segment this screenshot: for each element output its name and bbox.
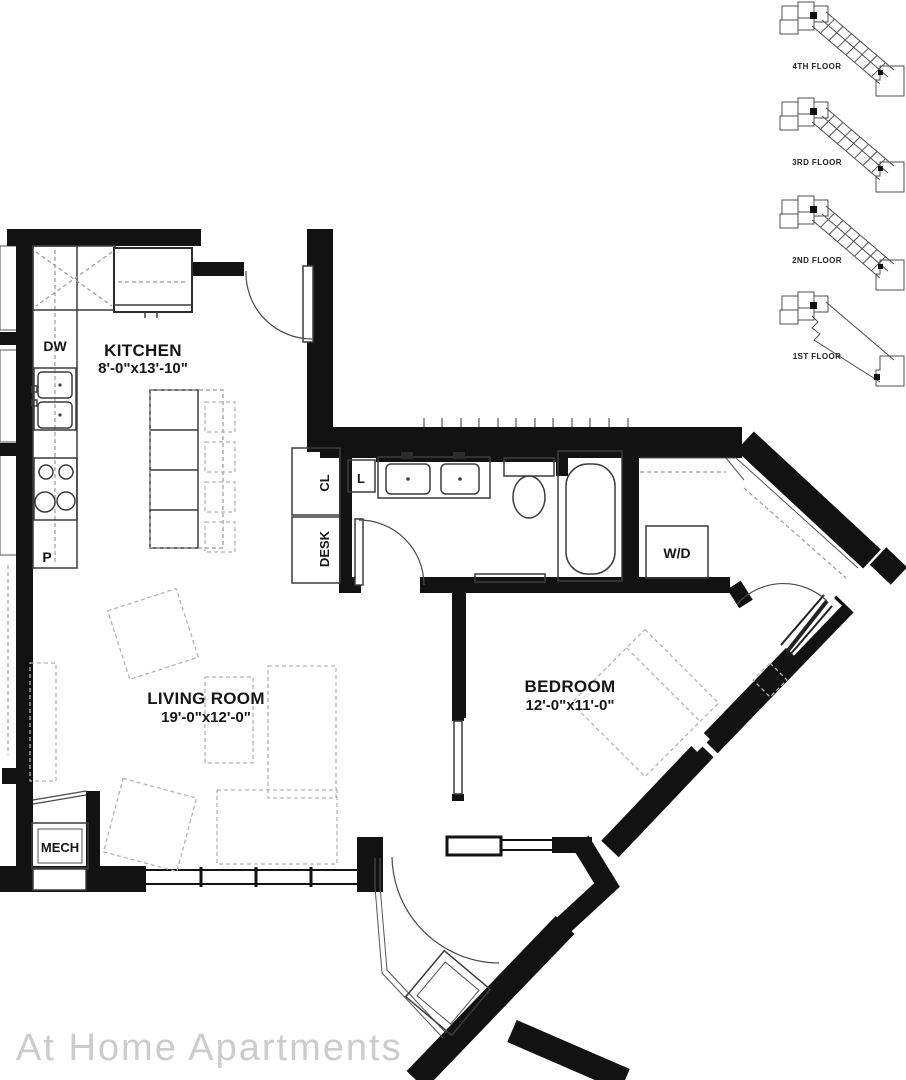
living-room-label: LIVING ROOM [147, 689, 265, 708]
bathroom-door [355, 519, 424, 585]
patio-entry-door [392, 837, 501, 963]
sofa [268, 666, 336, 798]
floor-key-1st [780, 292, 904, 386]
unit-entry-door-kitchen [246, 266, 313, 342]
mech-door [33, 791, 86, 804]
bedroom-window [500, 840, 552, 850]
floor-key-1st-label: 1ST FLOOR [793, 352, 842, 361]
floor-key-2nd [780, 196, 904, 290]
entry-vestibule [375, 858, 490, 1038]
corridor-hatch [424, 418, 628, 427]
floor-plan: KITCHEN 8'-0"x13'-10" LIVING ROOM 19'-0"… [0, 0, 906, 1080]
kitchen-area [32, 246, 235, 568]
adjacent-unit-fragments [0, 246, 17, 784]
mech-label: MECH [41, 840, 79, 855]
living-room-dims: 19'-0"x12'-0" [161, 709, 251, 726]
mech-louver [33, 868, 86, 890]
bedroom-label: BEDROOM [525, 677, 616, 696]
dishwasher-label: DW [43, 338, 67, 354]
linen-label: L [357, 471, 365, 486]
floor-key-3rd-label: 3RD FLOOR [792, 158, 842, 167]
furniture [30, 589, 787, 872]
kitchen-dims: 8'-0"x13'-10" [98, 360, 188, 377]
bedroom-dims: 12'-0"x11'-0" [526, 697, 615, 714]
toilet [504, 458, 554, 518]
kitchen-island [150, 390, 235, 552]
desk-nook [292, 517, 340, 583]
kitchen-label: KITCHEN [104, 341, 182, 360]
svg-text:At Home Apartments: At Home Apartments [16, 1027, 403, 1069]
floor-key-4th [780, 2, 904, 96]
watermark: At Home Apartments At Home Apartments [16, 1027, 404, 1070]
refrigerator [114, 248, 192, 318]
pantry-label: P [42, 549, 51, 565]
entry-closet [292, 448, 340, 515]
bedroom-door-leaf [454, 721, 462, 794]
floor-key-3rd [780, 98, 904, 192]
closet-label: CL [317, 474, 332, 491]
upper-cabinet [33, 246, 115, 310]
floor-key-4th-label: 4TH FLOOR [793, 62, 842, 71]
kitchen-sink [32, 368, 76, 430]
floor-key: 4TH FLOOR 3RD FLOOR 2ND FLOOR 1ST FLOOR [780, 2, 904, 386]
desk-label: DESK [317, 530, 332, 567]
washer-dryer-label: W/D [663, 545, 690, 561]
floor-key-2nd-label: 2ND FLOOR [792, 256, 842, 265]
tv-console [30, 663, 56, 781]
